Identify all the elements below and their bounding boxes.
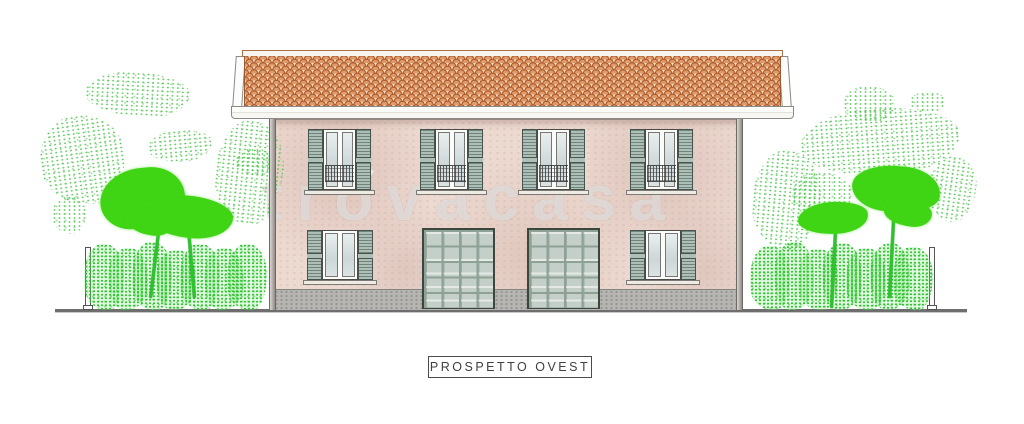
- hedge-right: [750, 242, 933, 312]
- window-sill: [626, 190, 697, 195]
- shutter-left-icon: [307, 230, 322, 280]
- window-frame: [645, 230, 681, 280]
- window-railing: [647, 165, 676, 182]
- upper-window-4: [630, 129, 693, 190]
- title-label: PROSPETTO OVEST: [430, 360, 590, 374]
- shutter-left-icon: [630, 129, 645, 190]
- shutter-right-icon: [468, 129, 483, 190]
- window-railing: [437, 165, 466, 182]
- window-sill: [304, 190, 375, 195]
- shutter-right-icon: [678, 129, 693, 190]
- window-frame: [322, 230, 358, 280]
- shutter-left-icon: [630, 230, 645, 280]
- garage-door-left: [422, 228, 495, 309]
- ground-window-right: [630, 230, 696, 280]
- shutter-left-icon: [420, 129, 435, 190]
- window-pane: [665, 233, 678, 277]
- shutter-right-icon: [681, 230, 696, 280]
- shutter-right-icon: [358, 230, 373, 280]
- tree-foliage-sketch: [843, 86, 895, 122]
- hedge-bush: [227, 244, 267, 310]
- roof-fascia: [231, 106, 794, 119]
- facade-plinth: [269, 289, 743, 310]
- ground-window-left: [307, 230, 373, 280]
- window-sill: [303, 280, 377, 285]
- shutter-right-icon: [356, 129, 371, 190]
- shutter-left-icon: [308, 129, 323, 190]
- window-pane: [325, 233, 338, 277]
- window-frame: [645, 129, 678, 190]
- window-sill: [626, 280, 700, 285]
- elevation-canvas: trovacasa: [0, 0, 1024, 424]
- shutter-right-icon: [570, 129, 585, 190]
- window-sill: [416, 190, 487, 195]
- upper-window-2: [420, 129, 483, 190]
- hedge-bush: [893, 247, 933, 310]
- downspout-right: [736, 119, 743, 310]
- downspout-left: [269, 119, 276, 310]
- tree-foliage-sketch: [52, 196, 86, 234]
- upper-window-3: [522, 129, 585, 190]
- window-frame: [537, 129, 570, 190]
- window-pane: [648, 233, 661, 277]
- shutter-left-icon: [522, 129, 537, 190]
- tree-foliage-sketch: [84, 69, 191, 119]
- tree-foliage-sketch: [147, 127, 214, 164]
- window-railing: [539, 165, 568, 182]
- window-pane: [342, 233, 355, 277]
- hedge-left: [84, 242, 267, 312]
- window-frame: [323, 129, 356, 190]
- roof-tiles: [244, 56, 781, 107]
- garage-door-right: [527, 228, 600, 309]
- tree-foliage-sketch: [235, 148, 273, 176]
- upper-window-1: [308, 129, 371, 190]
- title-box: PROSPETTO OVEST: [428, 356, 592, 378]
- window-frame: [435, 129, 468, 190]
- window-sill: [518, 190, 589, 195]
- window-railing: [325, 165, 354, 182]
- tree-foliage-sketch: [910, 92, 946, 112]
